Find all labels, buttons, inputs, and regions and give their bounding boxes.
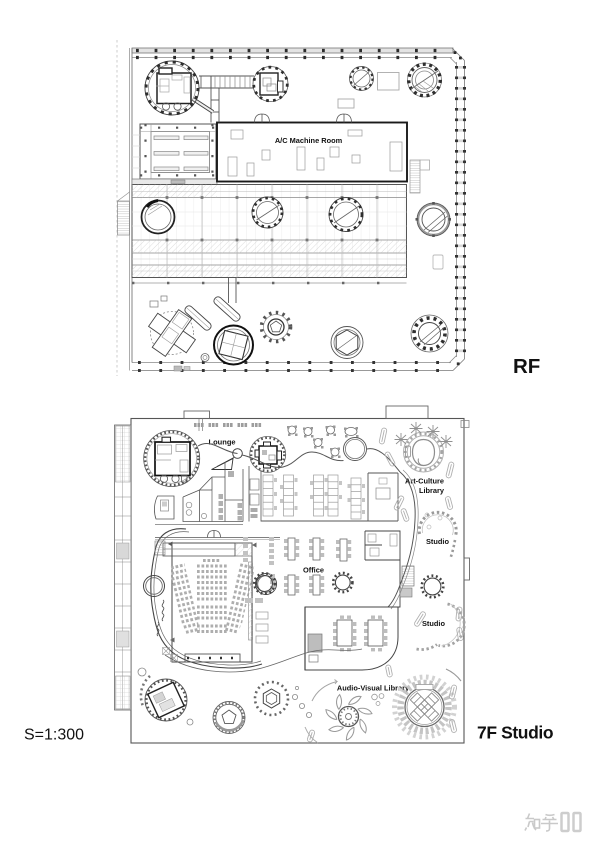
svg-text:RF: RF xyxy=(513,355,540,378)
svg-text:Studio: Studio xyxy=(422,619,445,628)
svg-text:A/C Machine Room: A/C Machine Room xyxy=(275,136,343,145)
svg-text:Lounge: Lounge xyxy=(209,438,236,447)
svg-text:Studio: Studio xyxy=(426,537,449,546)
svg-text:Office: Office xyxy=(303,566,324,575)
svg-text:Library: Library xyxy=(419,486,445,495)
svg-text:S=1:300: S=1:300 xyxy=(24,727,84,744)
svg-text:7F Studio: 7F Studio xyxy=(477,723,553,743)
svg-text:Art-Culture: Art-Culture xyxy=(405,477,444,486)
